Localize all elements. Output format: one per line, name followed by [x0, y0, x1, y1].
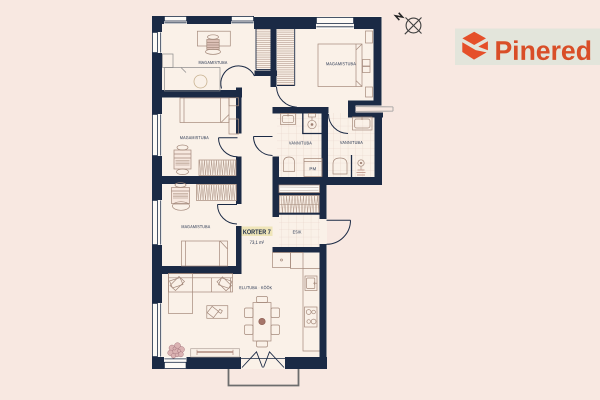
svg-text:MAGAMISTUBA: MAGAMISTUBA	[326, 61, 356, 66]
svg-text:VANNITUBA: VANNITUBA	[340, 140, 363, 145]
svg-text:ESIK: ESIK	[293, 230, 302, 235]
svg-text:MAGAMISTUBA: MAGAMISTUBA	[180, 135, 209, 140]
svg-text:VANNITUBA: VANNITUBA	[289, 141, 312, 146]
svg-text:MAGAMISTUBA: MAGAMISTUBA	[198, 60, 227, 65]
svg-text:ELUTUBA · KÖÖK: ELUTUBA · KÖÖK	[239, 285, 272, 290]
svg-text:MAGAMISTUBA: MAGAMISTUBA	[181, 224, 210, 229]
svg-text:KORTER 7: KORTER 7	[243, 229, 271, 236]
svg-text:PM: PM	[309, 166, 316, 171]
svg-text:73,1 m²: 73,1 m²	[250, 240, 265, 246]
svg-text:Pinered: Pinered	[494, 36, 592, 66]
